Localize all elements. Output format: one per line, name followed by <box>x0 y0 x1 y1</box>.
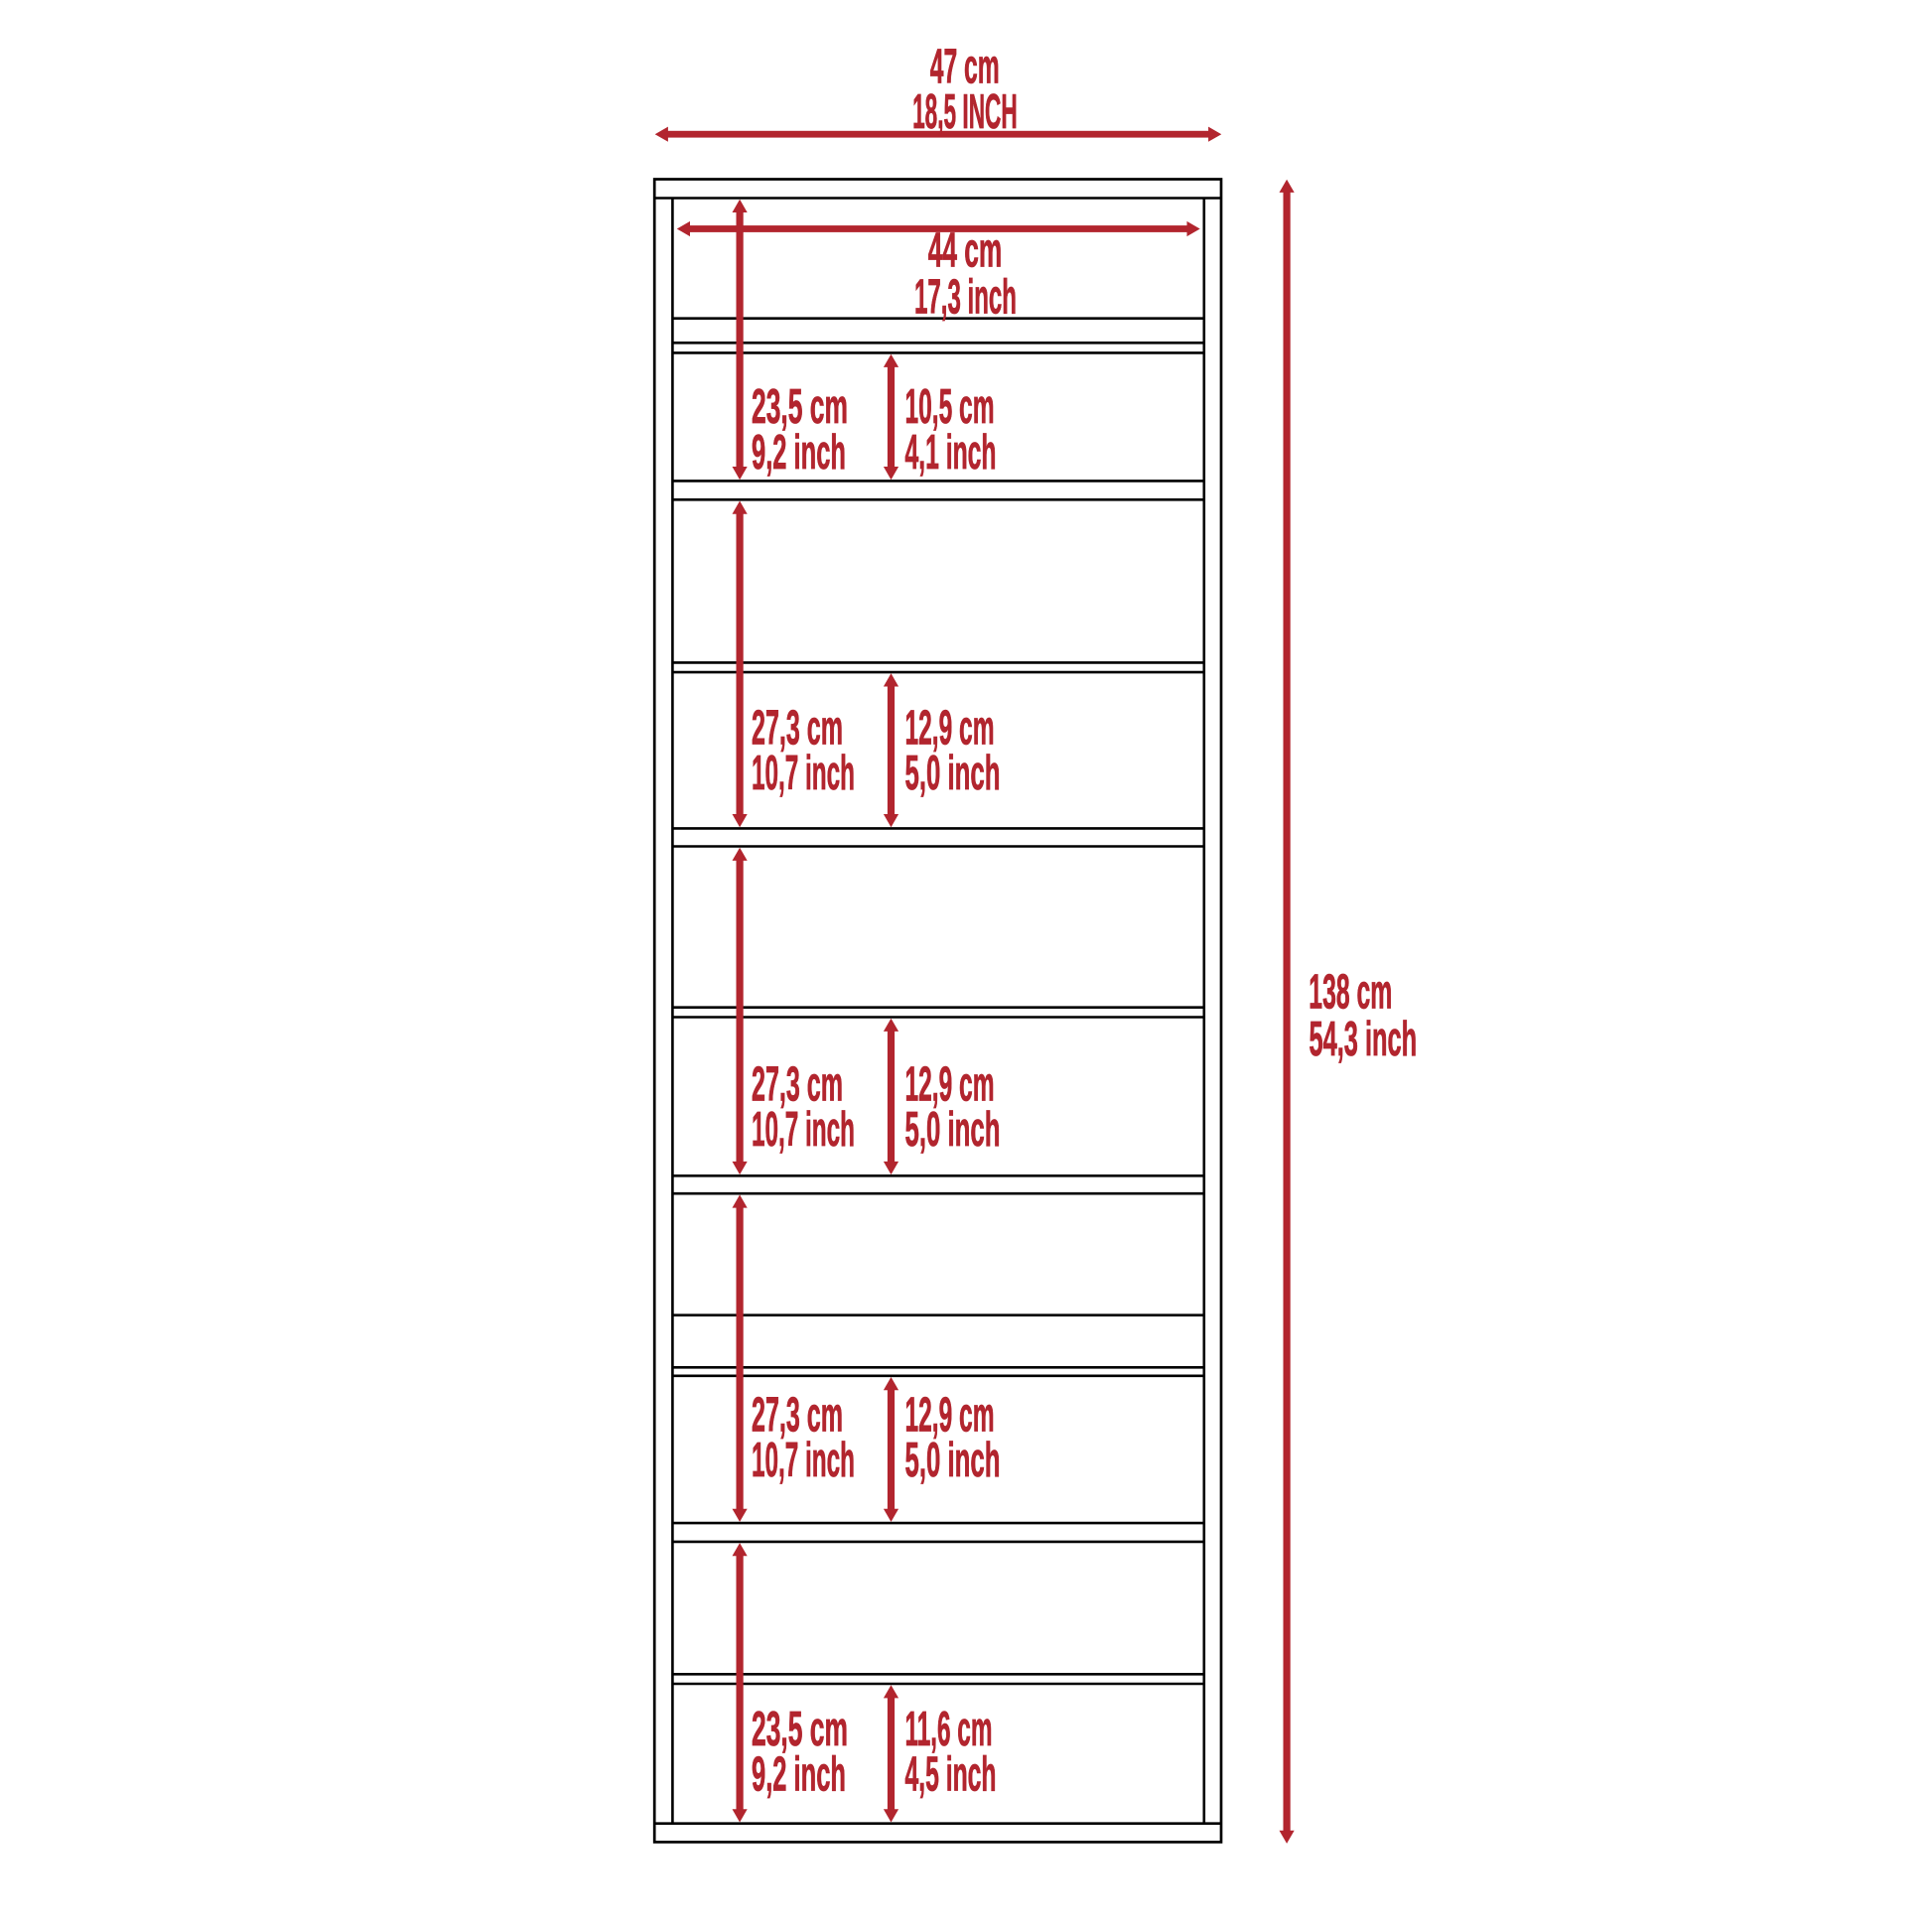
svg-text:9,2 inch: 9,2 inch <box>752 1747 846 1801</box>
svg-text:10,7 inch: 10,7 inch <box>752 1103 855 1157</box>
svg-text:44 cm: 44 cm <box>928 224 1003 278</box>
svg-text:4,1 inch: 4,1 inch <box>905 426 997 480</box>
svg-text:18,5 INCH: 18,5 INCH <box>912 85 1018 139</box>
svg-text:5,0 inch: 5,0 inch <box>905 1434 1001 1487</box>
svg-text:138 cm: 138 cm <box>1309 966 1392 1020</box>
svg-text:5,0 inch: 5,0 inch <box>905 1103 1001 1157</box>
svg-text:5,0 inch: 5,0 inch <box>905 747 1001 800</box>
svg-text:17,3 inch: 17,3 inch <box>914 271 1017 325</box>
svg-text:9,2 inch: 9,2 inch <box>752 426 846 480</box>
svg-text:54,3 inch: 54,3 inch <box>1310 1013 1418 1066</box>
svg-text:4,5 inch: 4,5 inch <box>905 1747 997 1801</box>
svg-text:10,7 inch: 10,7 inch <box>752 1434 855 1487</box>
svg-text:10,7 inch: 10,7 inch <box>752 747 855 800</box>
